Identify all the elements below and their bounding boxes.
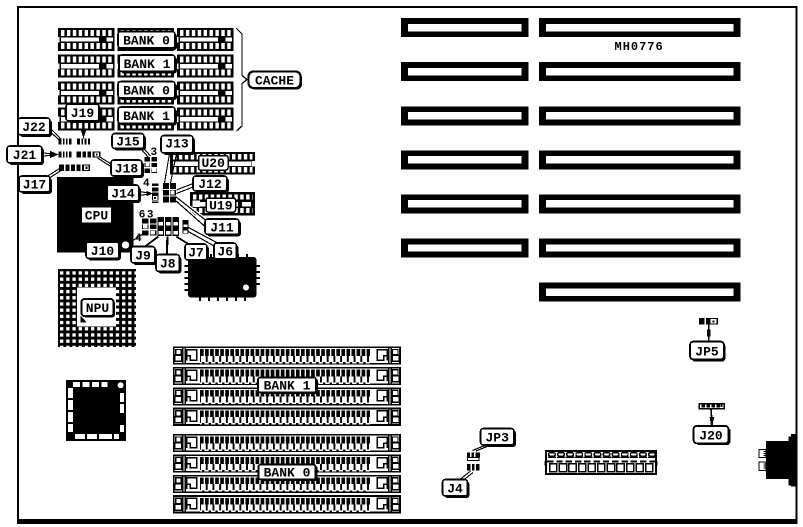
svg-text:U20: U20 — [201, 156, 225, 171]
svg-text:J15: J15 — [116, 135, 140, 150]
svg-text:J9: J9 — [135, 248, 151, 263]
svg-text:MH0776: MH0776 — [615, 40, 664, 54]
svg-text:CPU: CPU — [85, 209, 108, 224]
svg-text:J13: J13 — [165, 137, 189, 152]
svg-text:J10: J10 — [91, 244, 115, 259]
svg-text:JP5: JP5 — [695, 344, 719, 359]
svg-text:J19: J19 — [71, 106, 95, 121]
svg-text:J22: J22 — [22, 120, 46, 135]
svg-text:BANK 0: BANK 0 — [123, 33, 170, 48]
svg-text:J7: J7 — [188, 246, 204, 261]
svg-text:4: 4 — [143, 178, 150, 190]
svg-text:J8: J8 — [160, 257, 176, 272]
svg-text:J14: J14 — [111, 187, 135, 202]
svg-text:J11: J11 — [210, 221, 234, 236]
svg-text:J17: J17 — [23, 178, 46, 193]
svg-text:JP3: JP3 — [485, 430, 509, 445]
svg-text:J12: J12 — [198, 177, 222, 192]
svg-text:J18: J18 — [115, 162, 139, 177]
svg-text:BANK 1: BANK 1 — [123, 109, 170, 124]
svg-text:J21: J21 — [13, 148, 37, 163]
svg-text:63: 63 — [139, 210, 155, 222]
svg-text:U19: U19 — [209, 199, 233, 214]
svg-text:4: 4 — [135, 233, 142, 245]
svg-text:CACHE: CACHE — [255, 73, 294, 88]
svg-text:BANK 0: BANK 0 — [264, 466, 311, 481]
svg-text:BANK 1: BANK 1 — [264, 379, 311, 394]
svg-text:J4: J4 — [447, 481, 463, 496]
svg-text:BANK 0: BANK 0 — [123, 83, 170, 98]
svg-text:NPU: NPU — [86, 301, 109, 316]
svg-text:J20: J20 — [699, 428, 723, 443]
svg-text:BANK 1: BANK 1 — [124, 57, 171, 72]
svg-text:J6: J6 — [217, 245, 233, 260]
svg-text:3: 3 — [151, 147, 158, 159]
